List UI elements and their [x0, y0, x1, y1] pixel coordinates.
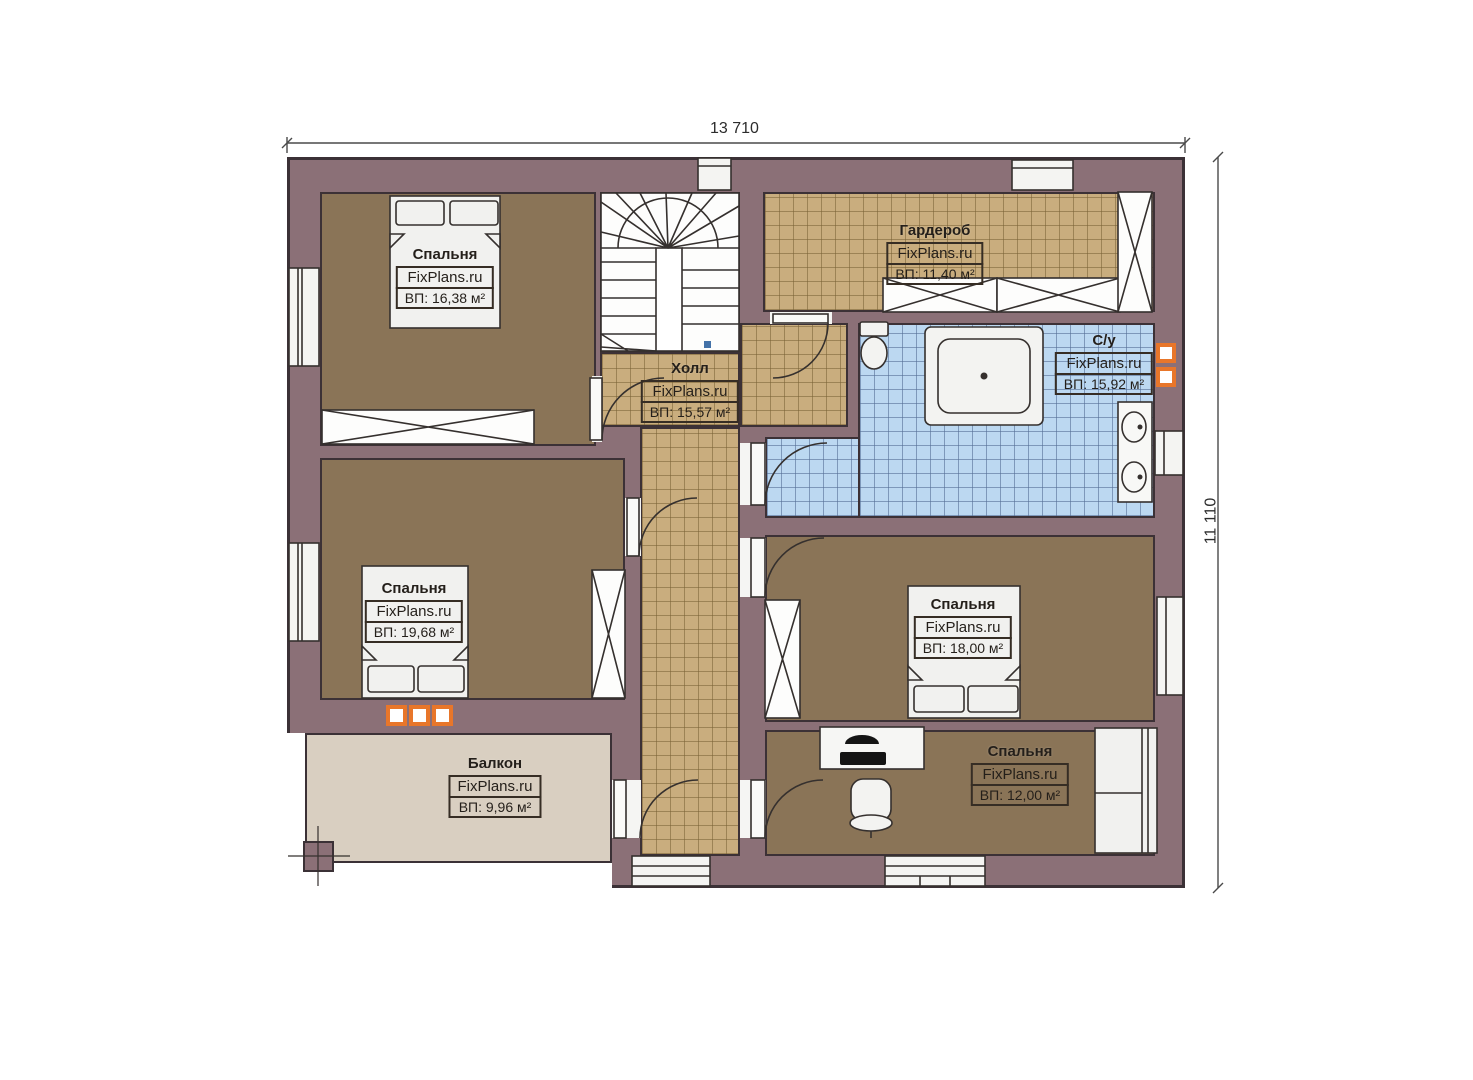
room-area: ВП: 15,57 м² — [641, 401, 739, 423]
room-bedroom-left-floor — [320, 458, 625, 700]
room-title: С/у — [1055, 332, 1153, 349]
room-area: ВП: 19,68 м² — [365, 621, 463, 643]
watermark: FixPlans.ru — [365, 600, 463, 623]
room-title: Гардероб — [886, 222, 983, 239]
room-area: ВП: 11,40 м² — [886, 263, 983, 285]
watermark: FixPlans.ru — [886, 242, 983, 265]
room-area: ВП: 16,38 м² — [396, 287, 494, 309]
room-title: Спальня — [365, 580, 463, 597]
room-hall-floor-b — [740, 323, 848, 427]
label-bathroom: С/у FixPlans.ru ВП: 15,92 м² — [1055, 332, 1153, 395]
label-balcony: Балкон FixPlans.ru ВП: 9,96 м² — [448, 755, 541, 818]
watermark: FixPlans.ru — [914, 616, 1012, 639]
room-area: ВП: 18,00 м² — [914, 637, 1012, 659]
door-opening-balcony — [612, 780, 641, 838]
room-bedroom-tl-floor — [320, 192, 596, 446]
door-opening-bathroom — [740, 443, 766, 505]
room-title: Спальня — [396, 246, 494, 263]
room-title: Спальня — [914, 596, 1012, 613]
room-title: Спальня — [971, 743, 1069, 760]
dimension-width: 13 710 — [710, 120, 759, 138]
watermark: FixPlans.ru — [641, 380, 739, 403]
door-opening-wardrobe — [770, 312, 832, 324]
room-area: ВП: 15,92 м² — [1055, 373, 1153, 395]
room-title: Балкон — [448, 755, 541, 772]
room-area: ВП: 12,00 м² — [971, 784, 1069, 806]
label-bedroom-br: Спальня FixPlans.ru ВП: 12,00 м² — [971, 743, 1069, 806]
watermark: FixPlans.ru — [448, 775, 541, 798]
balcony-column — [303, 841, 334, 872]
watermark: FixPlans.ru — [971, 763, 1069, 786]
corridor-floor — [640, 427, 740, 856]
watermark: FixPlans.ru — [396, 266, 494, 289]
label-bedroom-tl: Спальня FixPlans.ru ВП: 16,38 м² — [396, 246, 494, 309]
stairwell — [600, 192, 740, 352]
label-bedroom-center: Спальня FixPlans.ru ВП: 18,00 м² — [914, 596, 1012, 659]
room-bathroom-extension-floor — [765, 437, 858, 518]
floor-plan: Спальня FixPlans.ru ВП: 16,38 м² Гардеро… — [0, 0, 1473, 1080]
label-hall: Холл FixPlans.ru ВП: 15,57 м² — [641, 360, 739, 423]
label-bedroom-left: Спальня FixPlans.ru ВП: 19,68 м² — [365, 580, 463, 643]
room-area: ВП: 9,96 м² — [448, 796, 541, 818]
room-bedroom-br-floor — [765, 730, 1155, 856]
room-title: Холл — [641, 360, 739, 377]
door-opening-bedroom-center — [740, 538, 766, 597]
label-wardrobe: Гардероб FixPlans.ru ВП: 11,40 м² — [886, 222, 983, 285]
watermark: FixPlans.ru — [1055, 352, 1153, 375]
door-opening-bedroom-tl — [592, 376, 602, 442]
dimension-height: 11 110 — [1202, 498, 1220, 545]
door-opening-bedroom-br — [740, 780, 766, 838]
door-opening-bedroom-left — [625, 498, 641, 556]
